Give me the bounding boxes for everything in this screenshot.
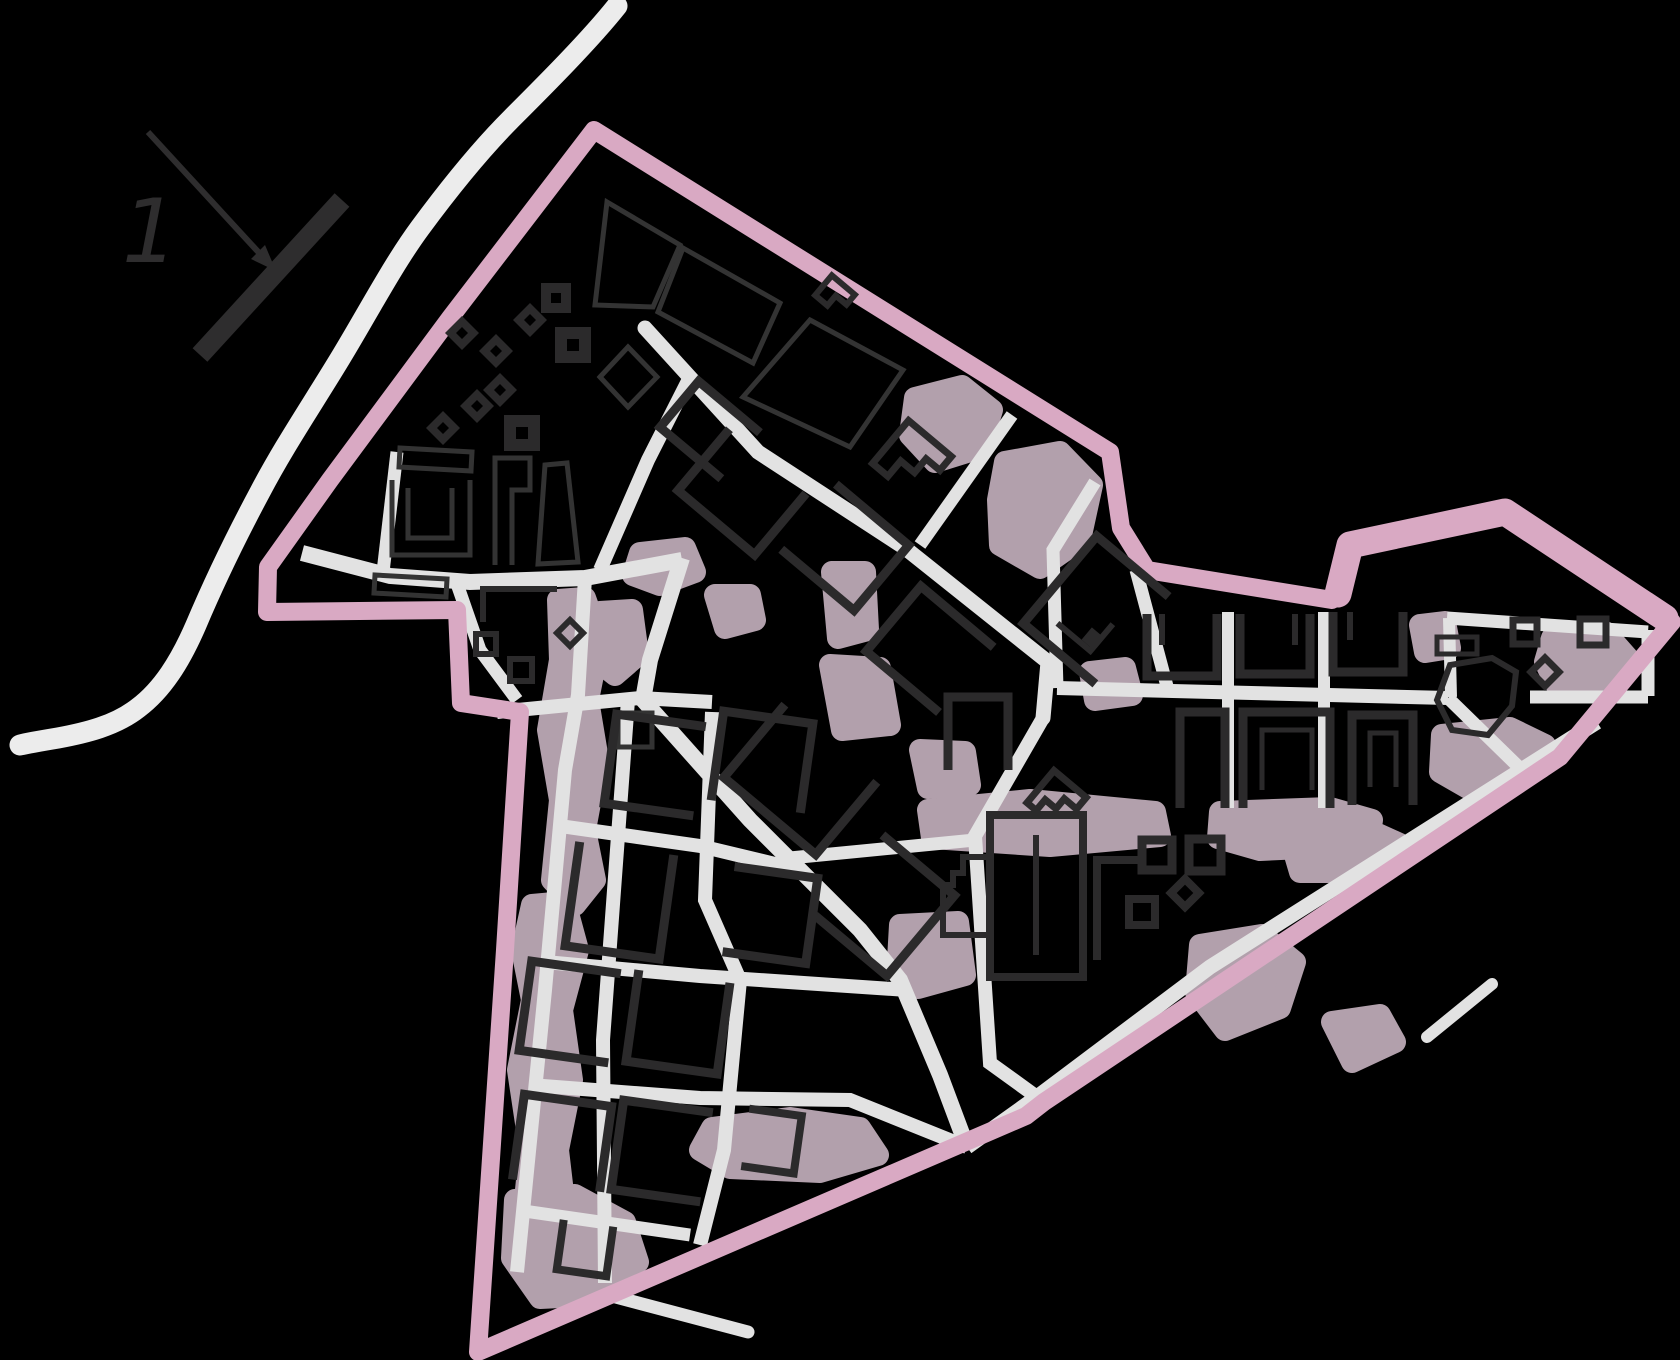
house-block: [541, 283, 571, 313]
building-outline: [1129, 899, 1155, 925]
boundary-band: [1338, 512, 1665, 618]
greenery-blob: [715, 595, 755, 628]
road-segment: [1447, 618, 1648, 632]
building-outline: [678, 429, 806, 555]
building-outline: [1142, 840, 1172, 870]
building-outline: [408, 488, 452, 538]
building-outline: [626, 970, 730, 1074]
house-block: [479, 334, 513, 368]
building-outline: [483, 589, 557, 622]
legend-number: 1: [122, 180, 178, 283]
river-layer: [20, 6, 617, 745]
road-segment: [1449, 618, 1451, 697]
legend: 1: [122, 132, 342, 355]
road-segment: [302, 553, 682, 582]
building-outline: [1352, 715, 1413, 805]
parcel-outline: [600, 347, 657, 407]
building-outline: [1333, 612, 1403, 672]
parcel-outline: [743, 320, 903, 447]
district-map-svg: 1: [0, 0, 1680, 1360]
building-outline: [1180, 712, 1225, 808]
road-segment: [497, 698, 712, 712]
district-map: 1: [0, 0, 1680, 1360]
building-outline: [538, 463, 578, 564]
road-segment: [1427, 984, 1492, 1037]
building-outline: [1171, 879, 1199, 907]
building-outline: [1243, 712, 1330, 808]
building-outline: [1240, 614, 1310, 674]
road-segment: [608, 1295, 748, 1332]
house-block: [555, 327, 591, 363]
legend-railway-bar: [200, 200, 342, 355]
building-outline: [1057, 597, 1112, 651]
building-outline: [399, 448, 472, 471]
house-block: [504, 415, 540, 451]
building-outline: [510, 659, 532, 681]
building-outline: [1097, 860, 1140, 960]
building-outline: [476, 634, 496, 654]
greenery-blob: [830, 665, 890, 730]
house-block: [426, 411, 460, 445]
building-outline: [1370, 733, 1396, 787]
river: [20, 6, 617, 745]
greenery-blob: [1332, 1015, 1395, 1062]
road-segment: [975, 718, 1043, 1097]
building-outline: [392, 480, 470, 555]
road-segment: [1057, 688, 1448, 698]
parcel-outline: [658, 248, 780, 363]
building-outline: [495, 458, 530, 565]
building-outline: [1262, 730, 1312, 790]
